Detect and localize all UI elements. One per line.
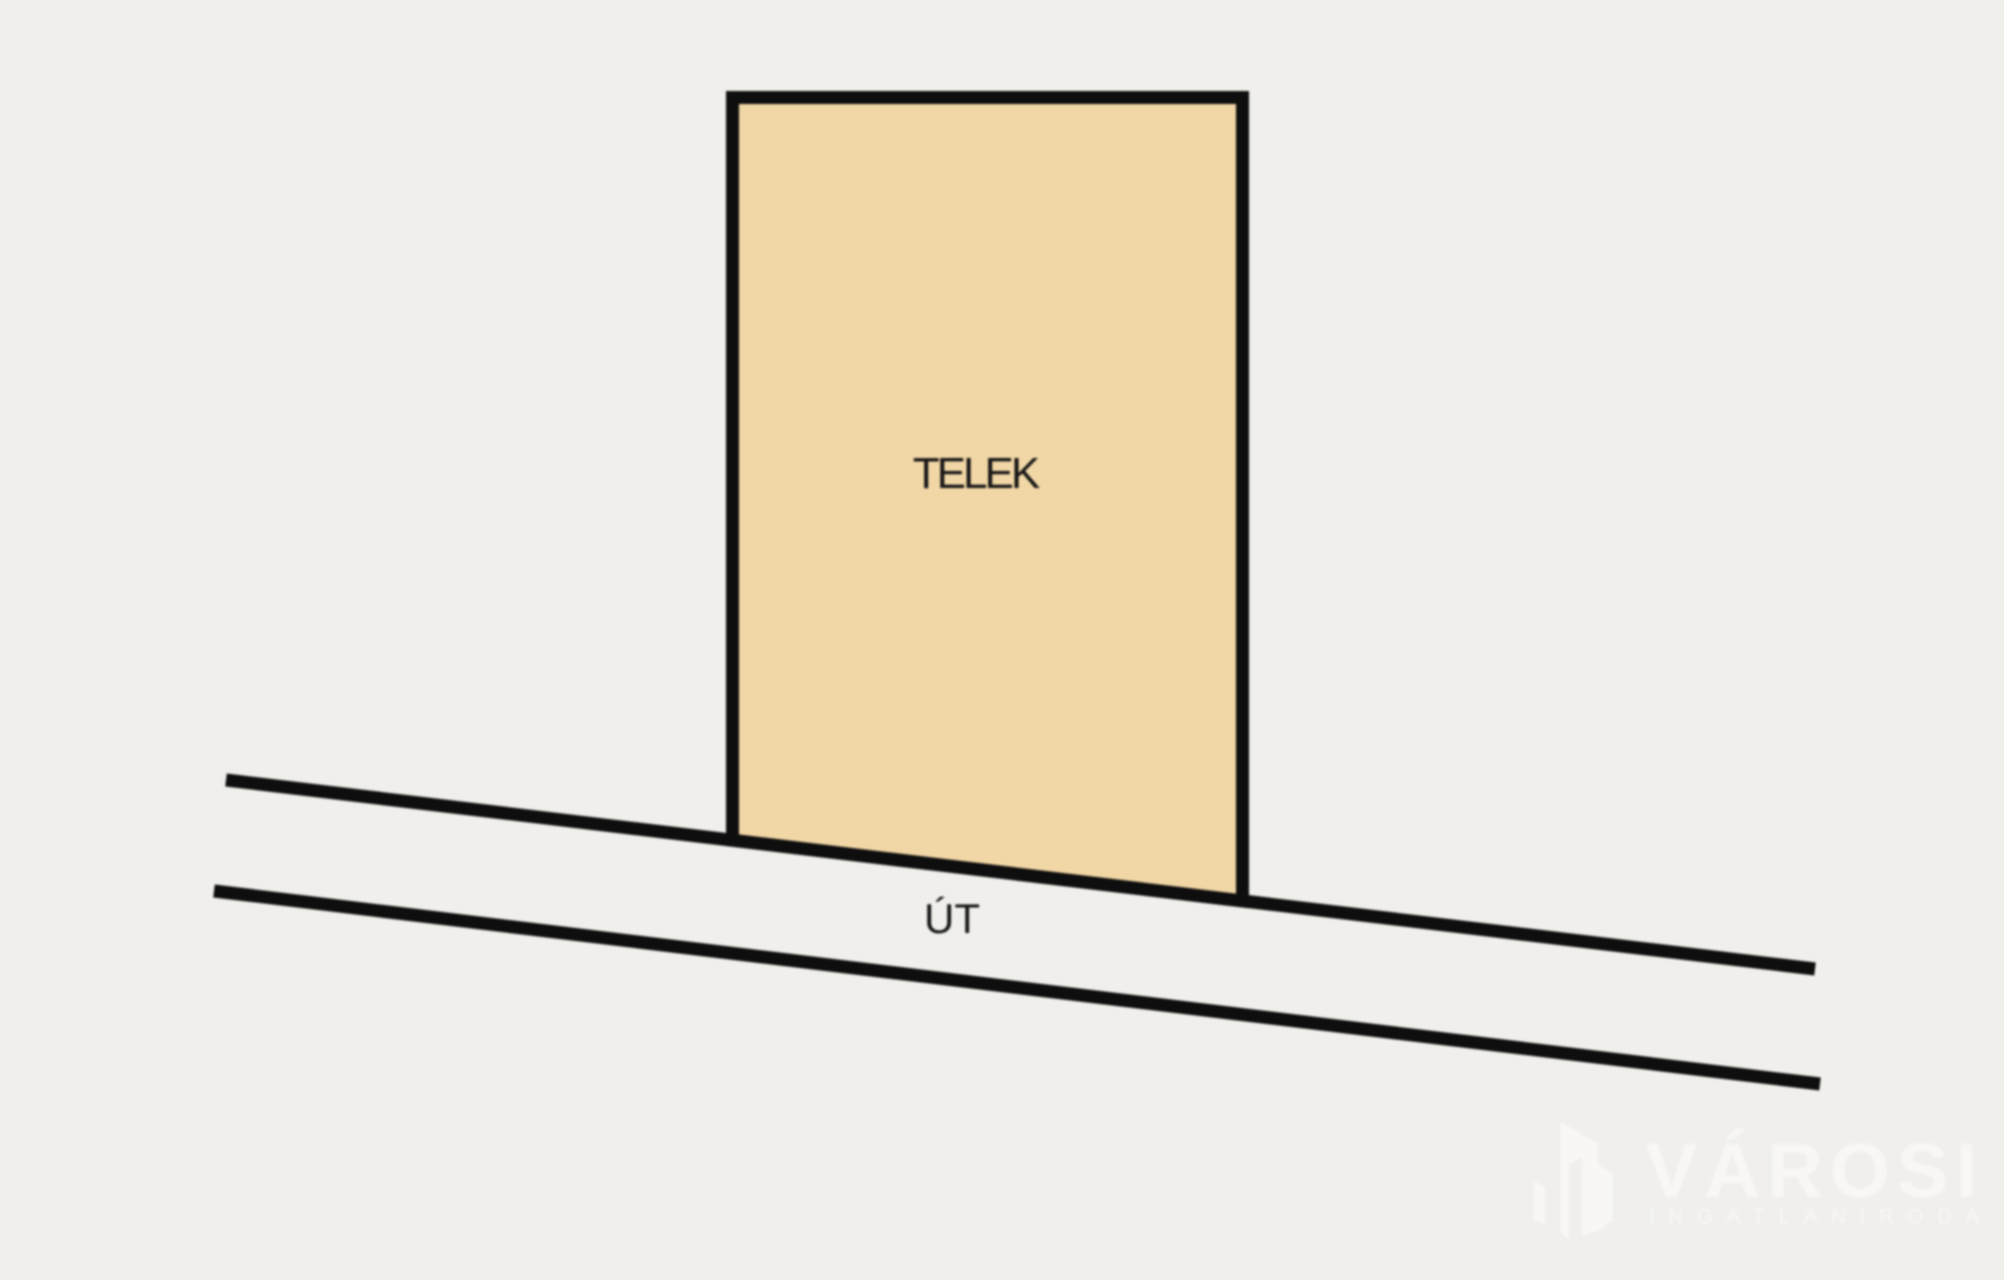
svg-text:TELEK: TELEK	[913, 449, 1040, 498]
svg-text:INGATLANIRODA: INGATLANIRODA	[1649, 1205, 1993, 1228]
svg-text:ÚT: ÚT	[924, 895, 980, 942]
svg-text:VÁROSI: VÁROSI	[1646, 1127, 1984, 1214]
